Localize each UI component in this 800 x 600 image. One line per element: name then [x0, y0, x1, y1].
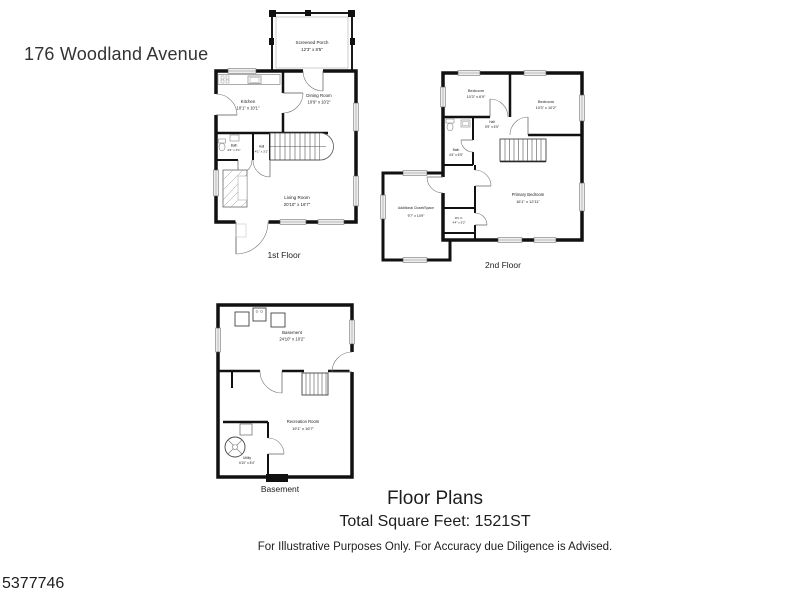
- upper-bath-label: Bath: [453, 148, 460, 152]
- fireplace: [223, 170, 247, 207]
- total-square-feet: Total Square Feet: 1521ST: [70, 513, 800, 531]
- basement-room-dims: 24'10" x 10'2": [279, 337, 305, 342]
- second-floor-caption: 2nd Floor: [485, 260, 521, 270]
- bedroom-left-label: Bedroom: [468, 88, 485, 93]
- recreation-room-label: Recreation Room: [287, 419, 320, 424]
- kitchen-counter: [218, 75, 280, 85]
- disclaimer-text: For Illustrative Purposes Only. For Accu…: [70, 541, 800, 553]
- property-address: 176 Woodland Avenue: [24, 44, 208, 65]
- dining-room-dims: 10'9" x 10'2": [308, 100, 331, 105]
- hall-dims: 4'1" x 3'1": [255, 150, 269, 154]
- primary-bedroom-label: Primary Bedroom: [512, 192, 545, 197]
- hall-label: Hall: [259, 145, 265, 149]
- upper-hall-dims: 5'9" x 6'5": [485, 125, 499, 129]
- upper-hall-label: Hall: [489, 120, 495, 124]
- bedroom-right-label: Bedroom: [538, 99, 555, 104]
- first-floor-caption: 1st Floor: [267, 250, 300, 260]
- wic-dims: 4'4" x 5'2": [452, 221, 465, 225]
- wic-label: W.I.C.: [455, 216, 464, 220]
- basement-room-label: Basement: [282, 330, 303, 335]
- bath-label: Bath: [231, 144, 238, 148]
- recreation-room-dims: 19'1" x 16'7": [292, 426, 315, 431]
- listing-id: 5377746: [2, 575, 64, 593]
- living-room-label: Living Room: [284, 195, 310, 200]
- primary-bedroom-dims: 16'1" x 12'11": [516, 199, 540, 204]
- second-floor-plan: Bedroom 10'3" x 6'9" Bedroom 10'3" x 10'…: [378, 65, 588, 275]
- screened-porch: Screened Porch 12'3" x 8'5": [269, 10, 355, 72]
- second-floor-stairs: [500, 139, 546, 161]
- bedroom-left-dims: 10'3" x 6'9": [467, 95, 486, 99]
- basement-stairs: [302, 373, 328, 395]
- basement-plan: Basement 24'10" x 10'2" Recreation Room …: [208, 300, 388, 500]
- bedroom-right-dims: 10'3" x 10'2": [536, 106, 557, 110]
- utility-dims: 6'10" x 8'4": [239, 461, 255, 465]
- living-room-dims: 20'10" x 16'7": [284, 202, 311, 207]
- front-door: [236, 220, 269, 255]
- first-floor-stairs: [270, 133, 334, 160]
- page-title: Floor Plans: [70, 488, 800, 510]
- dining-room-label: Dining Room: [306, 93, 332, 98]
- additional-closet-dims: 9'7" x 14'9": [408, 214, 426, 218]
- floor-plan-page: 176 Woodland Avenue Screened Porch 12'3"…: [0, 0, 800, 600]
- screened-porch-label: Screened Porch: [296, 40, 329, 45]
- utility-label: Utility: [243, 456, 251, 460]
- bath-dims: 4'2" x 3'1": [227, 148, 241, 152]
- kitchen-dims: 10'1" x 10'1": [237, 106, 260, 111]
- first-floor-plan: Screened Porch 12'3" x 8'5": [208, 8, 388, 283]
- screened-porch-dims: 12'3" x 8'5": [301, 47, 323, 52]
- kitchen-label: Kitchen: [241, 99, 256, 104]
- upper-bath-dims: 4'4" x 6'5": [449, 153, 463, 157]
- additional-closet-label: Additional Closet/Space: [398, 206, 434, 210]
